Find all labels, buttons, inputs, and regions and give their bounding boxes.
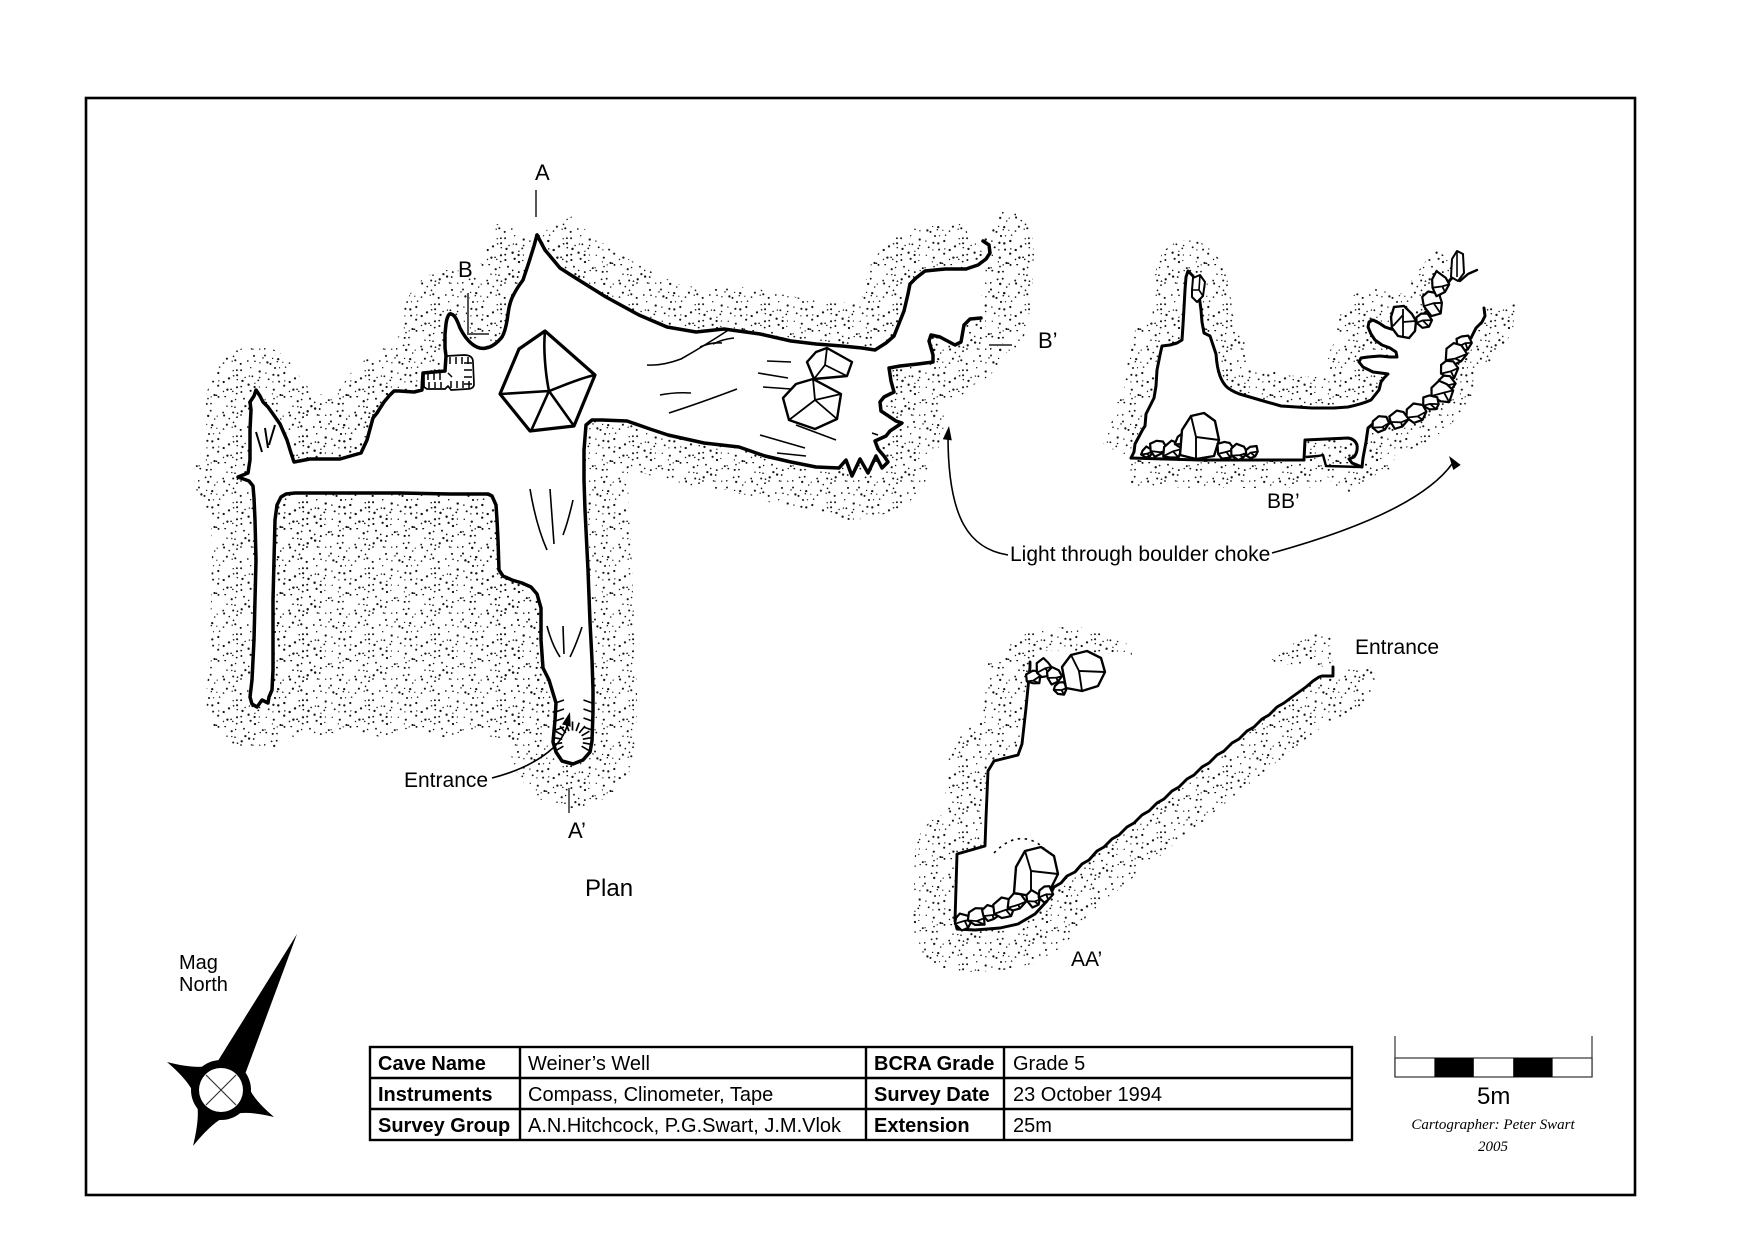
svg-text:BCRA Grade: BCRA Grade [874, 1053, 994, 1075]
svg-text:25m: 25m [1013, 1115, 1052, 1137]
svg-text:B’: B’ [1038, 328, 1058, 353]
svg-text:23 October 1994: 23 October 1994 [1013, 1084, 1162, 1106]
svg-text:Survey Group: Survey Group [378, 1115, 510, 1137]
svg-text:A: A [535, 160, 550, 185]
svg-text:BB’: BB’ [1267, 490, 1300, 513]
svg-text:Survey Date: Survey Date [874, 1084, 990, 1106]
svg-text:Plan: Plan [585, 875, 633, 902]
svg-text:B: B [458, 257, 473, 282]
svg-text:AA’: AA’ [1071, 948, 1102, 971]
svg-text:Light through boulder choke: Light through boulder choke [1010, 543, 1270, 566]
svg-text:Mag: Mag [179, 952, 218, 974]
svg-text:Entrance: Entrance [1355, 636, 1439, 659]
svg-text:Entrance: Entrance [404, 769, 488, 792]
svg-text:A.N.Hitchcock, P.G.Swart, J.M.: A.N.Hitchcock, P.G.Swart, J.M.Vlok [528, 1115, 842, 1137]
svg-text:Cartographer: Peter Swart: Cartographer: Peter Swart [1411, 1117, 1575, 1133]
svg-text:Instruments: Instruments [378, 1084, 492, 1106]
svg-text:Grade 5: Grade 5 [1013, 1053, 1085, 1075]
svg-text:5m: 5m [1477, 1083, 1510, 1110]
svg-text:A’: A’ [568, 818, 586, 843]
svg-text:Extension: Extension [874, 1115, 970, 1137]
svg-text:Compass, Clinometer, Tape: Compass, Clinometer, Tape [528, 1084, 773, 1106]
svg-text:Cave Name: Cave Name [378, 1053, 486, 1075]
svg-text:2005: 2005 [1478, 1139, 1509, 1155]
svg-text:Weiner’s Well: Weiner’s Well [528, 1053, 650, 1075]
svg-text:North: North [179, 974, 228, 996]
